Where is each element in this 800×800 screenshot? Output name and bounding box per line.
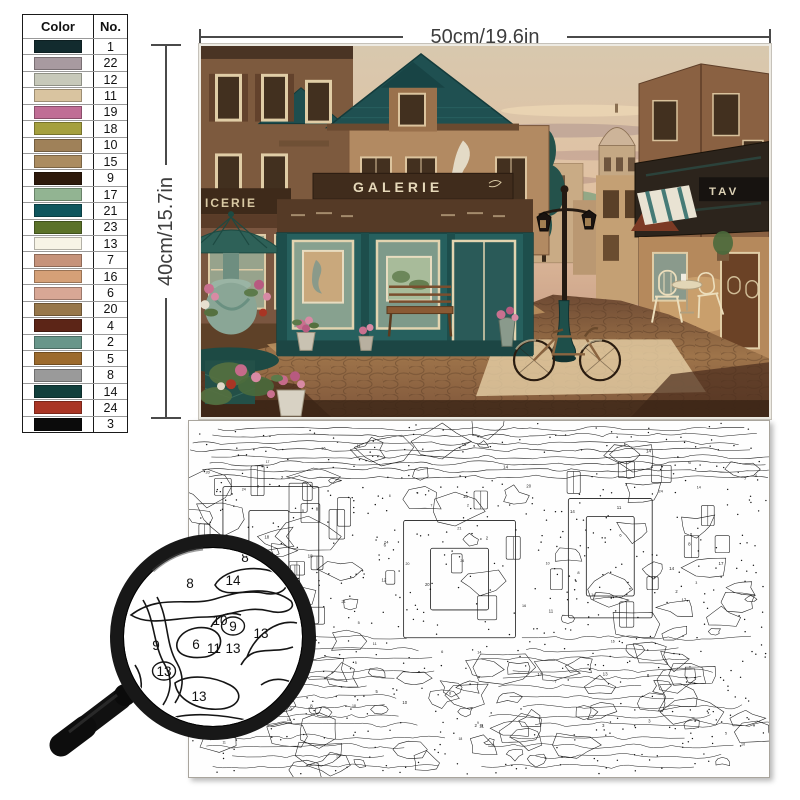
canvas-dot	[335, 770, 336, 771]
canvas-dot	[352, 497, 353, 498]
canvas-dot	[606, 767, 607, 768]
canvas-dot	[598, 773, 599, 774]
canvas-dot	[216, 772, 217, 773]
canvas-dot	[698, 550, 699, 551]
canvas-dot	[314, 433, 315, 434]
canvas-line	[626, 483, 661, 503]
canvas-line	[354, 759, 366, 767]
canvas-dot	[465, 477, 466, 478]
canvas-number: 24	[460, 559, 464, 563]
canvas-dot	[291, 688, 292, 689]
canvas-line	[745, 596, 757, 602]
canvas-dot	[191, 689, 192, 690]
canvas-dot	[372, 456, 373, 457]
canvas-line	[189, 509, 213, 525]
canvas-line	[189, 667, 210, 687]
canvas-dot	[207, 578, 208, 579]
canvas-dot	[294, 597, 295, 598]
canvas-dot	[285, 646, 286, 647]
canvas-dot	[423, 620, 424, 621]
canvas-dot	[463, 517, 464, 518]
canvas-number: 3	[648, 719, 651, 724]
canvas-dot	[363, 695, 364, 696]
canvas-dot	[753, 565, 754, 566]
canvas-dot	[446, 563, 447, 564]
canvas-dot	[242, 473, 243, 474]
canvas-dot	[306, 637, 307, 638]
canvas-number: 5	[358, 620, 360, 625]
canvas-dot	[755, 653, 756, 654]
canvas-dot	[516, 768, 517, 769]
canvas-dot	[610, 572, 611, 573]
canvas-dot	[711, 439, 712, 440]
color-swatch	[34, 122, 82, 135]
canvas-line	[190, 447, 750, 452]
canvas-dot	[690, 533, 691, 534]
canvas-dot	[265, 710, 266, 711]
lens-number-circle	[153, 662, 176, 680]
canvas-dot	[710, 445, 711, 446]
canvas-dot	[444, 554, 445, 555]
canvas-dot	[744, 619, 745, 620]
canvas-dot	[634, 754, 635, 755]
color-swatch-cell	[23, 55, 93, 70]
canvas-dot	[470, 576, 471, 577]
canvas-dot	[336, 696, 337, 697]
canvas-dot	[227, 685, 228, 686]
canvas-dot	[631, 436, 632, 437]
canvas-dot	[231, 493, 232, 494]
canvas-dot	[378, 495, 379, 496]
canvas-dot	[555, 511, 556, 512]
canvas-dot	[469, 683, 470, 684]
canvas-dot	[607, 515, 608, 516]
canvas-dot	[291, 570, 292, 571]
canvas-dot	[751, 651, 752, 652]
canvas-line	[232, 734, 445, 739]
canvas-dot	[215, 593, 216, 594]
canvas-dot	[333, 467, 334, 468]
canvas-dot	[681, 586, 682, 587]
canvas-line	[445, 684, 488, 709]
canvas-dot	[708, 709, 709, 710]
canvas-dot	[648, 432, 649, 433]
canvas-dot	[482, 487, 483, 488]
canvas-line	[371, 705, 389, 714]
color-swatch	[34, 287, 82, 300]
canvas-number: 16	[287, 718, 291, 722]
canvas-dot	[602, 574, 603, 575]
canvas-dot	[574, 739, 575, 740]
color-row: 17	[23, 186, 127, 202]
canvas-dot	[694, 677, 695, 678]
canvas-dot	[327, 490, 328, 491]
canvas-dot	[437, 624, 438, 625]
canvas-dot	[428, 490, 429, 491]
product-sheet: Color No. 122121119181015917212313716620…	[0, 0, 800, 800]
canvas-number: 12	[232, 713, 236, 717]
canvas-dot	[584, 555, 585, 556]
canvas-number: 16	[522, 604, 526, 608]
canvas-dot	[459, 556, 460, 557]
color-swatch-cell	[23, 285, 93, 300]
canvas-dot	[536, 628, 537, 629]
canvas-line	[510, 728, 542, 751]
canvas-dot	[396, 689, 397, 690]
canvas-dot	[306, 697, 307, 698]
canvas-number: 6	[282, 649, 285, 654]
canvas-dot	[457, 486, 458, 487]
canvas-dot	[544, 632, 545, 633]
canvas-dot	[748, 719, 749, 720]
color-legend-header: Color No.	[23, 15, 127, 38]
canvas-dot	[716, 466, 717, 467]
canvas-number: 17	[718, 561, 723, 566]
canvas-dot	[720, 677, 721, 678]
canvas-dot	[247, 540, 248, 541]
canvas-number: 3	[695, 581, 697, 585]
canvas-dot	[376, 536, 377, 537]
color-row: 21	[23, 202, 127, 218]
canvas-number: 18	[352, 704, 356, 708]
canvas-line	[656, 600, 693, 617]
canvas-dot	[615, 567, 616, 568]
canvas-dot	[529, 641, 530, 642]
canvas-dot	[246, 454, 247, 455]
canvas-dot	[387, 477, 388, 478]
canvas-dot	[674, 464, 675, 465]
canvas-dot	[270, 643, 271, 644]
canvas-dot	[718, 449, 719, 450]
canvas-number: 14	[503, 465, 509, 470]
color-swatch-cell	[23, 105, 93, 120]
canvas-dot	[627, 662, 628, 663]
canvas-dot	[254, 594, 255, 595]
canvas-dot	[394, 529, 395, 530]
canvas-dot	[689, 666, 690, 667]
color-swatch	[34, 40, 82, 53]
canvas-dot	[353, 734, 354, 735]
canvas-dot	[465, 668, 466, 669]
canvas-dot	[575, 581, 576, 582]
canvas-dot	[423, 612, 424, 613]
canvas-dot	[587, 624, 588, 625]
canvas-dot	[254, 547, 255, 548]
canvas-dot	[654, 576, 655, 577]
canvas-dot	[617, 718, 618, 719]
canvas-dot	[723, 467, 724, 468]
canvas-dot	[210, 571, 211, 572]
canvas-line	[223, 487, 319, 624]
canvas-dot	[473, 445, 474, 446]
canvas-dot	[673, 473, 674, 474]
color-row: 24	[23, 399, 127, 415]
canvas-dot	[365, 460, 366, 461]
canvas-number: 10	[402, 700, 407, 705]
canvas-dot	[442, 541, 443, 542]
canvas-dot	[690, 709, 691, 710]
canvas-dot	[195, 708, 196, 709]
canvas-number: 10	[546, 561, 550, 565]
canvas-dot	[620, 681, 621, 682]
canvas-number: 17	[537, 672, 542, 677]
canvas-dot	[263, 435, 264, 436]
color-number: 16	[93, 269, 127, 284]
color-swatch	[34, 106, 82, 119]
color-swatch	[34, 89, 82, 102]
color-number: 5	[93, 351, 127, 366]
canvas-dot	[677, 517, 678, 518]
canvas-dot	[713, 711, 714, 712]
canvas-number: 14	[477, 651, 481, 655]
canvas-dot	[509, 504, 510, 505]
color-swatch	[34, 385, 82, 398]
canvas-dot	[609, 732, 610, 733]
canvas-number: 20	[425, 582, 430, 587]
taverne-sign: TAV	[709, 186, 739, 198]
dimension-end-cap	[769, 29, 771, 45]
canvas-dot	[198, 672, 199, 673]
canvas-dot	[362, 487, 363, 488]
canvas-dot	[652, 493, 653, 494]
canvas-dot	[459, 475, 460, 476]
color-swatch	[34, 139, 82, 152]
canvas-line	[404, 520, 516, 637]
canvas-dot	[252, 526, 253, 527]
canvas-line	[210, 461, 766, 466]
canvas-dot	[226, 635, 227, 636]
canvas-dot	[400, 722, 401, 723]
canvas-dot	[388, 558, 389, 559]
canvas-dot	[652, 554, 653, 555]
color-swatch	[34, 155, 82, 168]
canvas-line	[653, 681, 672, 694]
canvas-dot	[440, 486, 441, 487]
canvas-dot	[300, 773, 301, 774]
canvas-dot	[457, 763, 458, 764]
canvas-dot	[453, 733, 454, 734]
canvas-dot	[223, 758, 224, 759]
canvas-dot	[401, 477, 402, 478]
canvas-dot	[408, 657, 409, 658]
galerie-storefront: GALERIE	[277, 173, 533, 356]
canvas-dot	[271, 737, 272, 738]
canvas-dot	[225, 500, 226, 501]
canvas-dot	[442, 722, 443, 723]
color-row: 1	[23, 38, 127, 54]
canvas-dot	[367, 713, 368, 714]
canvas-number: 10	[741, 742, 745, 746]
canvas-dot	[359, 459, 360, 460]
canvas-dot	[269, 484, 270, 485]
canvas-dot	[746, 570, 747, 571]
canvas-dot	[566, 592, 567, 593]
canvas-dot	[587, 664, 588, 665]
color-row: 7	[23, 251, 127, 267]
canvas-dot	[395, 594, 396, 595]
canvas-dot	[420, 535, 421, 536]
canvas-number: 7	[430, 504, 432, 508]
canvas-dot	[606, 517, 607, 518]
dimension-line	[567, 36, 769, 38]
canvas-number: 5	[725, 732, 727, 736]
canvas-line	[726, 582, 755, 596]
canvas-dot	[716, 719, 717, 720]
canvas-dot	[214, 676, 215, 677]
canvas-line	[308, 607, 325, 624]
color-row: 19	[23, 104, 127, 120]
canvas-dot	[373, 440, 374, 441]
color-row: 9	[23, 169, 127, 185]
canvas-dot	[204, 595, 205, 596]
canvas-dot	[477, 525, 478, 526]
canvas-dot	[355, 574, 356, 575]
canvas-line	[317, 562, 362, 581]
canvas-dot	[442, 429, 443, 430]
canvas-dot	[250, 696, 251, 697]
canvas-line	[660, 698, 724, 725]
color-number: 3	[93, 417, 127, 432]
canvas-dot	[279, 563, 280, 564]
color-swatch	[34, 418, 82, 431]
canvas-dot	[350, 708, 351, 709]
canvas-dot	[218, 597, 219, 598]
canvas-dot	[323, 606, 324, 607]
canvas-dot	[554, 568, 555, 569]
canvas-dot	[567, 599, 568, 600]
canvas-dot	[622, 642, 623, 643]
canvas-dot	[580, 545, 581, 546]
canvas-dot	[270, 715, 271, 716]
canvas-dot	[410, 592, 411, 593]
color-number: 9	[93, 170, 127, 185]
canvas-line	[535, 722, 769, 727]
canvas-dot	[657, 755, 658, 756]
canvas-dot	[345, 706, 346, 707]
canvas-dot	[416, 533, 417, 534]
canvas-line	[231, 634, 254, 651]
canvas-line	[403, 486, 441, 509]
color-swatch-cell	[23, 138, 93, 153]
canvas-dot	[353, 500, 354, 501]
canvas-dot	[537, 423, 538, 424]
canvas-number: 5	[625, 483, 627, 487]
canvas-dot	[346, 718, 347, 719]
canvas-line	[513, 668, 713, 672]
canvas-number: 20	[406, 562, 410, 566]
canvas-dot	[210, 522, 211, 523]
canvas-number: 14	[199, 549, 204, 554]
canvas-line	[316, 707, 332, 716]
canvas-dot	[470, 508, 471, 509]
canvas-dot	[282, 449, 283, 450]
color-swatch-cell	[23, 335, 93, 350]
canvas-dot	[406, 609, 407, 610]
canvas-line	[350, 437, 385, 462]
canvas-line	[510, 696, 674, 700]
canvas-dot	[748, 700, 749, 701]
canvas-dot	[369, 756, 370, 757]
canvas-dot	[233, 749, 234, 750]
canvas-dot	[259, 565, 260, 566]
canvas-dot	[532, 503, 533, 504]
canvas-dot	[696, 637, 697, 638]
canvas-dot	[230, 731, 231, 732]
canvas-dot	[248, 527, 249, 528]
canvas-dot	[191, 659, 192, 660]
canvas-dot	[403, 663, 404, 664]
canvas-number: 5	[302, 509, 304, 513]
canvas-dot	[301, 678, 302, 679]
canvas-dot	[222, 509, 223, 510]
canvas-dot	[711, 736, 712, 737]
canvas-dot	[367, 513, 368, 514]
canvas-dot	[621, 563, 622, 564]
painting-preview: ICERIE	[199, 44, 771, 419]
color-row: 10	[23, 137, 127, 153]
canvas-dot	[600, 495, 601, 496]
canvas-dot	[661, 768, 662, 769]
canvas-line	[526, 648, 678, 652]
canvas-dot	[758, 510, 759, 511]
canvas-dot	[333, 437, 334, 438]
canvas-dot	[310, 484, 311, 485]
color-row: 23	[23, 219, 127, 235]
canvas-dot	[382, 498, 383, 499]
color-swatch-cell	[23, 318, 93, 333]
canvas-dot	[284, 697, 285, 698]
canvas-line	[211, 455, 769, 459]
canvas-dot	[762, 612, 763, 613]
canvas-dot	[744, 581, 745, 582]
color-number: 1	[93, 39, 127, 54]
canvas-number: 3	[602, 723, 605, 728]
canvas-dot	[478, 677, 479, 678]
canvas-number: 16	[611, 640, 615, 644]
canvas-dot	[271, 728, 272, 729]
canvas-dot	[576, 519, 577, 520]
canvas-dot	[348, 497, 349, 498]
canvas-line	[633, 642, 668, 664]
canvas-dot	[603, 665, 604, 666]
canvas-dot	[648, 428, 649, 429]
canvas-number: 8	[389, 494, 391, 498]
canvas-dot	[585, 529, 586, 530]
canvas-dot	[575, 579, 576, 580]
canvas-dot	[686, 681, 687, 682]
canvas-dot	[624, 443, 625, 444]
canvas-dot	[253, 449, 254, 450]
canvas-dot	[538, 549, 539, 550]
canvas-line	[715, 536, 729, 553]
canvas-dot	[313, 710, 314, 711]
canvas-dot	[267, 669, 268, 670]
canvas-number: 11	[549, 608, 554, 613]
canvas-dot	[293, 719, 294, 720]
color-swatch-cell	[23, 367, 93, 382]
canvas-dot	[698, 565, 699, 566]
canvas-dot	[374, 747, 375, 748]
canvas-line	[272, 544, 298, 557]
canvas-line	[249, 510, 289, 599]
canvas-number: 7	[198, 629, 201, 634]
canvas-dot	[550, 598, 551, 599]
canvas-line	[523, 705, 742, 709]
canvas-dot	[273, 522, 274, 523]
canvas-dot	[569, 575, 570, 576]
canvas-dot	[565, 628, 566, 629]
canvas-dot	[591, 476, 592, 477]
